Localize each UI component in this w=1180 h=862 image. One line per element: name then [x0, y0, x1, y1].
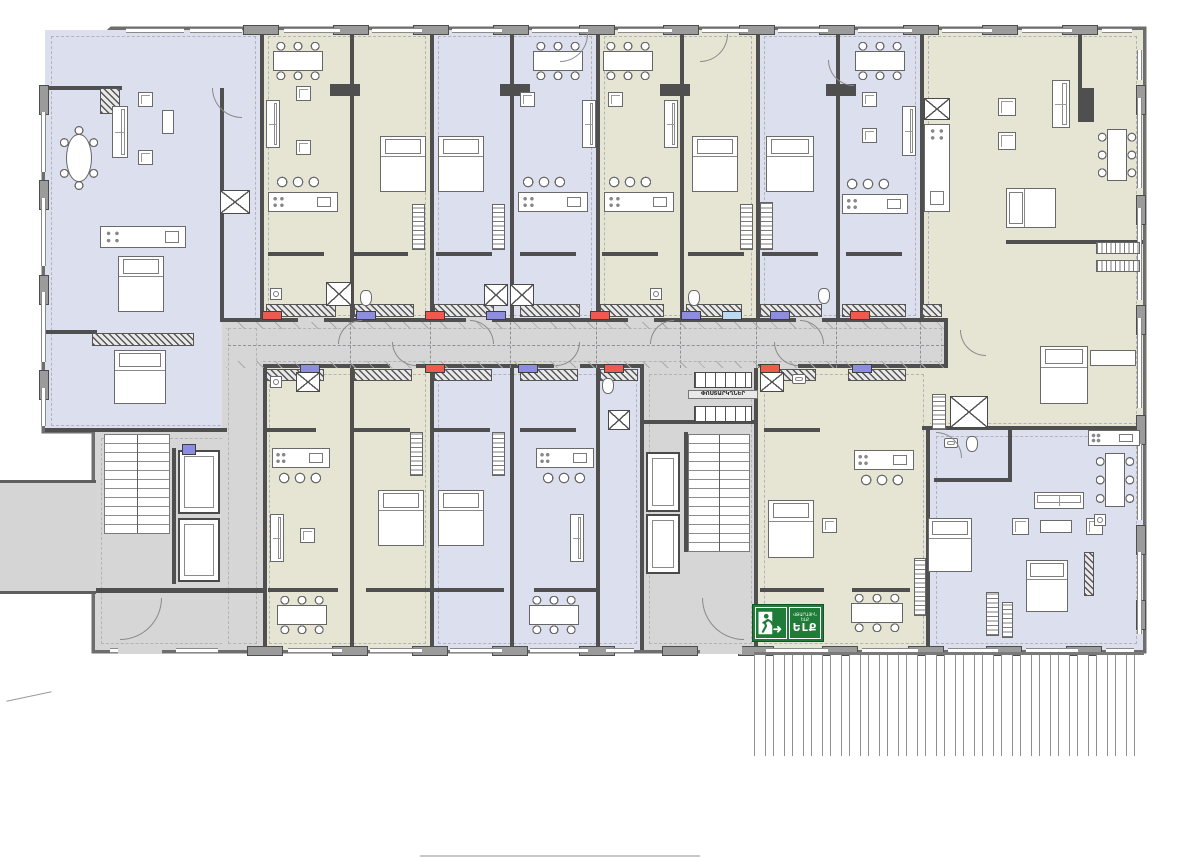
- elev-82: [646, 514, 680, 574]
- wall-pier-0: [243, 25, 279, 35]
- wall-76: [172, 448, 176, 584]
- chair-98: [1012, 518, 1029, 535]
- stripes-v-21: [492, 204, 505, 250]
- sofa-v-25: [582, 100, 596, 148]
- chair-3: [138, 150, 153, 165]
- chair-86: [822, 518, 837, 533]
- window-29: [1137, 50, 1142, 80]
- stools-27: [522, 176, 566, 188]
- elev-77: [178, 518, 220, 582]
- stripes-v-103: [986, 592, 999, 636]
- bed-v-101: [928, 518, 972, 572]
- chair-31: [608, 92, 623, 107]
- wall-62: [852, 588, 910, 592]
- wc-73: [602, 378, 614, 394]
- wall-60: [534, 588, 596, 592]
- stools-13: [276, 176, 320, 188]
- grid-dash-8: [228, 345, 944, 346]
- kitchen-h-5: [100, 226, 186, 248]
- hatched-wall-35: [922, 304, 942, 317]
- stools-88: [860, 474, 904, 486]
- door-mat-red-0: [262, 311, 282, 320]
- chair-26: [520, 92, 535, 107]
- bed-v-68: [438, 490, 484, 546]
- kitchen-h-46: [842, 194, 908, 214]
- door-mat-blue-14: [852, 364, 872, 373]
- elev-76: [178, 450, 220, 514]
- entrance-platform: [0, 480, 96, 594]
- area-unit-right-corner: [922, 30, 1143, 430]
- shaft-15: [326, 282, 352, 306]
- window-30: [1137, 98, 1142, 188]
- stripes-h-54: [1096, 242, 1140, 254]
- door-mat-blue-11: [518, 364, 538, 373]
- window-3: [372, 28, 422, 33]
- area-corridor-link-left: [222, 322, 263, 650]
- stripes-v-91: [932, 394, 946, 430]
- wall-22: [602, 252, 658, 256]
- wall-0: [260, 30, 264, 322]
- wall-56: [95, 588, 267, 593]
- wall-pier-11: [247, 646, 283, 656]
- shaft-22: [484, 284, 508, 306]
- window-12: [1102, 28, 1132, 33]
- sofa-v-30: [664, 100, 678, 148]
- exit-sign: ՎԹԱՐԱՅԻՆ ԵԼՔ ԵԼՔ: [752, 604, 824, 642]
- wc-37: [688, 290, 700, 306]
- sofa-v-10: [266, 100, 280, 148]
- wash-34: [650, 288, 662, 300]
- dining-h-9: [272, 42, 324, 80]
- exit-sign-label: ԵԼՔ: [793, 622, 818, 634]
- bed-v-20: [438, 136, 484, 192]
- wall-21: [520, 252, 576, 256]
- door-mat-red-12: [604, 364, 624, 373]
- wall-65: [434, 428, 490, 432]
- shaft-8: [220, 190, 250, 214]
- bed-v-102: [1026, 560, 1068, 612]
- sofa-v-42: [902, 106, 916, 156]
- shaft-74: [608, 410, 630, 430]
- window-11: [1022, 28, 1072, 33]
- wall-1: [350, 30, 354, 322]
- wash-105: [1094, 514, 1106, 526]
- wc-40: [818, 288, 830, 304]
- window-14: [176, 648, 218, 653]
- ground-line: [420, 855, 700, 857]
- bed-v-56: [1040, 346, 1088, 404]
- window-33: [1137, 444, 1142, 520]
- chair-43: [862, 92, 877, 107]
- dining-v-96: [1096, 452, 1134, 508]
- wall-24: [762, 252, 818, 256]
- tbl-4: [162, 110, 174, 134]
- door-mat-blue-9: [300, 364, 320, 373]
- wall-54: [45, 428, 227, 432]
- window-25: [41, 112, 46, 172]
- wc-94: [966, 436, 978, 452]
- wall-12: [45, 330, 97, 334]
- stools-32: [608, 176, 652, 188]
- hatched-wall-73: [1084, 552, 1094, 596]
- window-18: [530, 648, 588, 653]
- kitchen-h-95: [1088, 430, 1140, 446]
- exit-sign-text: ՎԹԱՐԱՅԻՆ ԵԼՔ ԵԼՔ: [789, 607, 821, 639]
- wall-71: [934, 478, 1010, 482]
- dining-h-64: [276, 596, 328, 634]
- bed-v-85: [768, 500, 814, 558]
- stripes-v-90: [914, 558, 926, 616]
- wall-69: [1078, 88, 1094, 122]
- hatched-wall-40: [354, 369, 412, 381]
- sofa-v-62: [270, 514, 284, 562]
- door-mat-blue-3: [486, 311, 506, 320]
- wall-47: [350, 368, 354, 650]
- stripes-v-36: [740, 204, 753, 250]
- dining-v-52: [1098, 128, 1136, 182]
- wall-4: [596, 30, 600, 322]
- wall-63: [266, 428, 316, 432]
- dining-h-29: [602, 42, 654, 80]
- door-mat-blue-1: [356, 311, 376, 320]
- window-31: [1137, 208, 1142, 300]
- chair-49: [998, 98, 1016, 116]
- wall-6: [756, 30, 760, 322]
- stairs-v-80: [688, 434, 750, 552]
- wall-3: [510, 30, 514, 322]
- chair-50: [998, 132, 1016, 150]
- door-mat-red-13: [760, 364, 780, 373]
- door-mat-lblue-6: [722, 311, 742, 320]
- window-34: [1137, 552, 1142, 634]
- door-mat-red-2: [425, 311, 445, 320]
- door-mat-blue-15: [182, 444, 196, 455]
- wall-20: [436, 252, 492, 256]
- bed-v-7: [114, 350, 166, 404]
- window-9: [858, 28, 912, 33]
- shaft-59: [296, 372, 320, 392]
- wall-23: [688, 252, 744, 256]
- bed-v-35: [692, 136, 738, 192]
- wall-18: [268, 252, 324, 256]
- wc-19: [360, 290, 372, 306]
- chair-11: [296, 86, 311, 101]
- corridor-tick-strip-1: [226, 361, 944, 368]
- tbl-100: [1040, 520, 1072, 533]
- window-5: [532, 28, 588, 33]
- kitchen-h-60: [272, 448, 330, 468]
- wall-61: [760, 588, 824, 592]
- floor-plan-canvas: ՎԹԱՐԱՅԻՆ ԵԼՔ ԵԼՔ ՓՈՍՏԱՐԿՂՆԵՐ: [0, 0, 1180, 862]
- hatched-wall-13: [92, 333, 194, 346]
- wall-72: [1008, 430, 1012, 482]
- pergola-deck: [754, 652, 1144, 756]
- chair-2: [138, 92, 153, 107]
- window-4: [452, 28, 502, 33]
- window-27: [41, 292, 46, 362]
- wall-pier-22: [39, 85, 49, 115]
- wash-16: [270, 288, 282, 300]
- wall-2: [430, 30, 434, 322]
- mailboxes-79: [694, 406, 752, 422]
- sofa-v-1: [112, 106, 128, 158]
- window-8: [778, 28, 828, 33]
- wall-14: [330, 84, 360, 96]
- mailboxes-78: [694, 372, 752, 388]
- shaft-23: [510, 284, 534, 306]
- window-15: [288, 648, 342, 653]
- sofa-h-97: [1034, 492, 1084, 509]
- wall-57: [268, 588, 338, 592]
- corridor-tick-strip-0: [226, 322, 944, 329]
- door-mat-red-4: [590, 311, 610, 320]
- dining-h-72: [528, 596, 580, 634]
- wall-66: [520, 428, 576, 432]
- kitchen-v-48: [924, 124, 950, 212]
- dining-h-41: [854, 42, 906, 80]
- wall-38: [944, 322, 948, 368]
- wash-58: [270, 376, 282, 388]
- wall-5: [680, 30, 684, 322]
- stripes-v-104: [1002, 602, 1013, 638]
- desk-57: [1090, 350, 1136, 366]
- wall-64: [354, 428, 410, 432]
- shaft-47: [924, 98, 950, 120]
- stripes-v-67: [492, 432, 505, 476]
- wall-19: [352, 252, 408, 256]
- sofa-v-71: [570, 514, 584, 562]
- bed-v-17: [380, 136, 426, 192]
- stripes-h-55: [1096, 260, 1140, 272]
- door-opening-7: [118, 644, 162, 654]
- stripes-v-18: [412, 204, 425, 250]
- wall-67: [764, 428, 820, 432]
- window-32: [1137, 318, 1142, 408]
- wall-pier-16: [662, 646, 698, 656]
- window-0: [126, 28, 184, 33]
- window-7: [702, 28, 748, 33]
- window-17: [450, 648, 502, 653]
- bed-h-53: [1006, 188, 1056, 228]
- wall-46: [263, 368, 267, 650]
- exit-running-man-icon: [755, 607, 787, 639]
- kitchen-h-14: [268, 192, 338, 212]
- sink-84: [792, 374, 806, 384]
- window-19: [606, 648, 634, 653]
- door-mat-red-10: [425, 364, 445, 373]
- kitchen-h-87: [854, 450, 914, 470]
- window-10: [942, 28, 992, 33]
- wall-68: [1078, 30, 1082, 90]
- shaft-92: [950, 396, 988, 428]
- oval-0: [58, 126, 100, 190]
- window-1: [190, 28, 242, 33]
- stools-45: [846, 178, 890, 190]
- window-2: [284, 28, 340, 33]
- bed-v-66: [378, 490, 424, 546]
- wall-48: [430, 368, 434, 650]
- door-mat-blue-7: [770, 311, 790, 320]
- stairs-v-75: [104, 434, 170, 534]
- stools-61: [278, 472, 322, 484]
- wall-16: [660, 84, 690, 96]
- shaft-83: [760, 372, 784, 392]
- stripes-v-65: [410, 432, 423, 476]
- window-28: [41, 388, 46, 426]
- dining-h-89: [850, 594, 904, 632]
- stripes-v-39: [760, 202, 773, 250]
- kitchen-h-28: [518, 192, 588, 212]
- chair-44: [862, 128, 877, 143]
- chair-63: [300, 528, 315, 543]
- elev-81: [646, 452, 680, 512]
- wall-pier-30: [1136, 525, 1146, 555]
- door-opening-8: [700, 644, 742, 654]
- stools-70: [542, 472, 586, 484]
- window-26: [41, 198, 46, 266]
- wall-25: [846, 252, 902, 256]
- door-mat-red-8: [850, 311, 870, 320]
- sofa-v-51: [1052, 80, 1070, 128]
- wall-50: [596, 368, 600, 650]
- wall-51: [640, 368, 644, 650]
- window-16: [370, 648, 422, 653]
- door-mat-blue-5: [681, 311, 701, 320]
- window-6: [618, 28, 672, 33]
- wall-58: [366, 588, 432, 592]
- chair-12: [296, 140, 311, 155]
- wall-59: [434, 588, 504, 592]
- kitchen-h-33: [604, 192, 674, 212]
- wall-49: [510, 368, 514, 650]
- mailboxes-label: ՓՈՍՏԱՐԿՂՆԵՐ: [688, 390, 758, 399]
- kitchen-h-69: [536, 448, 594, 468]
- bed-v-38: [766, 136, 814, 192]
- bed-v-6: [118, 256, 164, 312]
